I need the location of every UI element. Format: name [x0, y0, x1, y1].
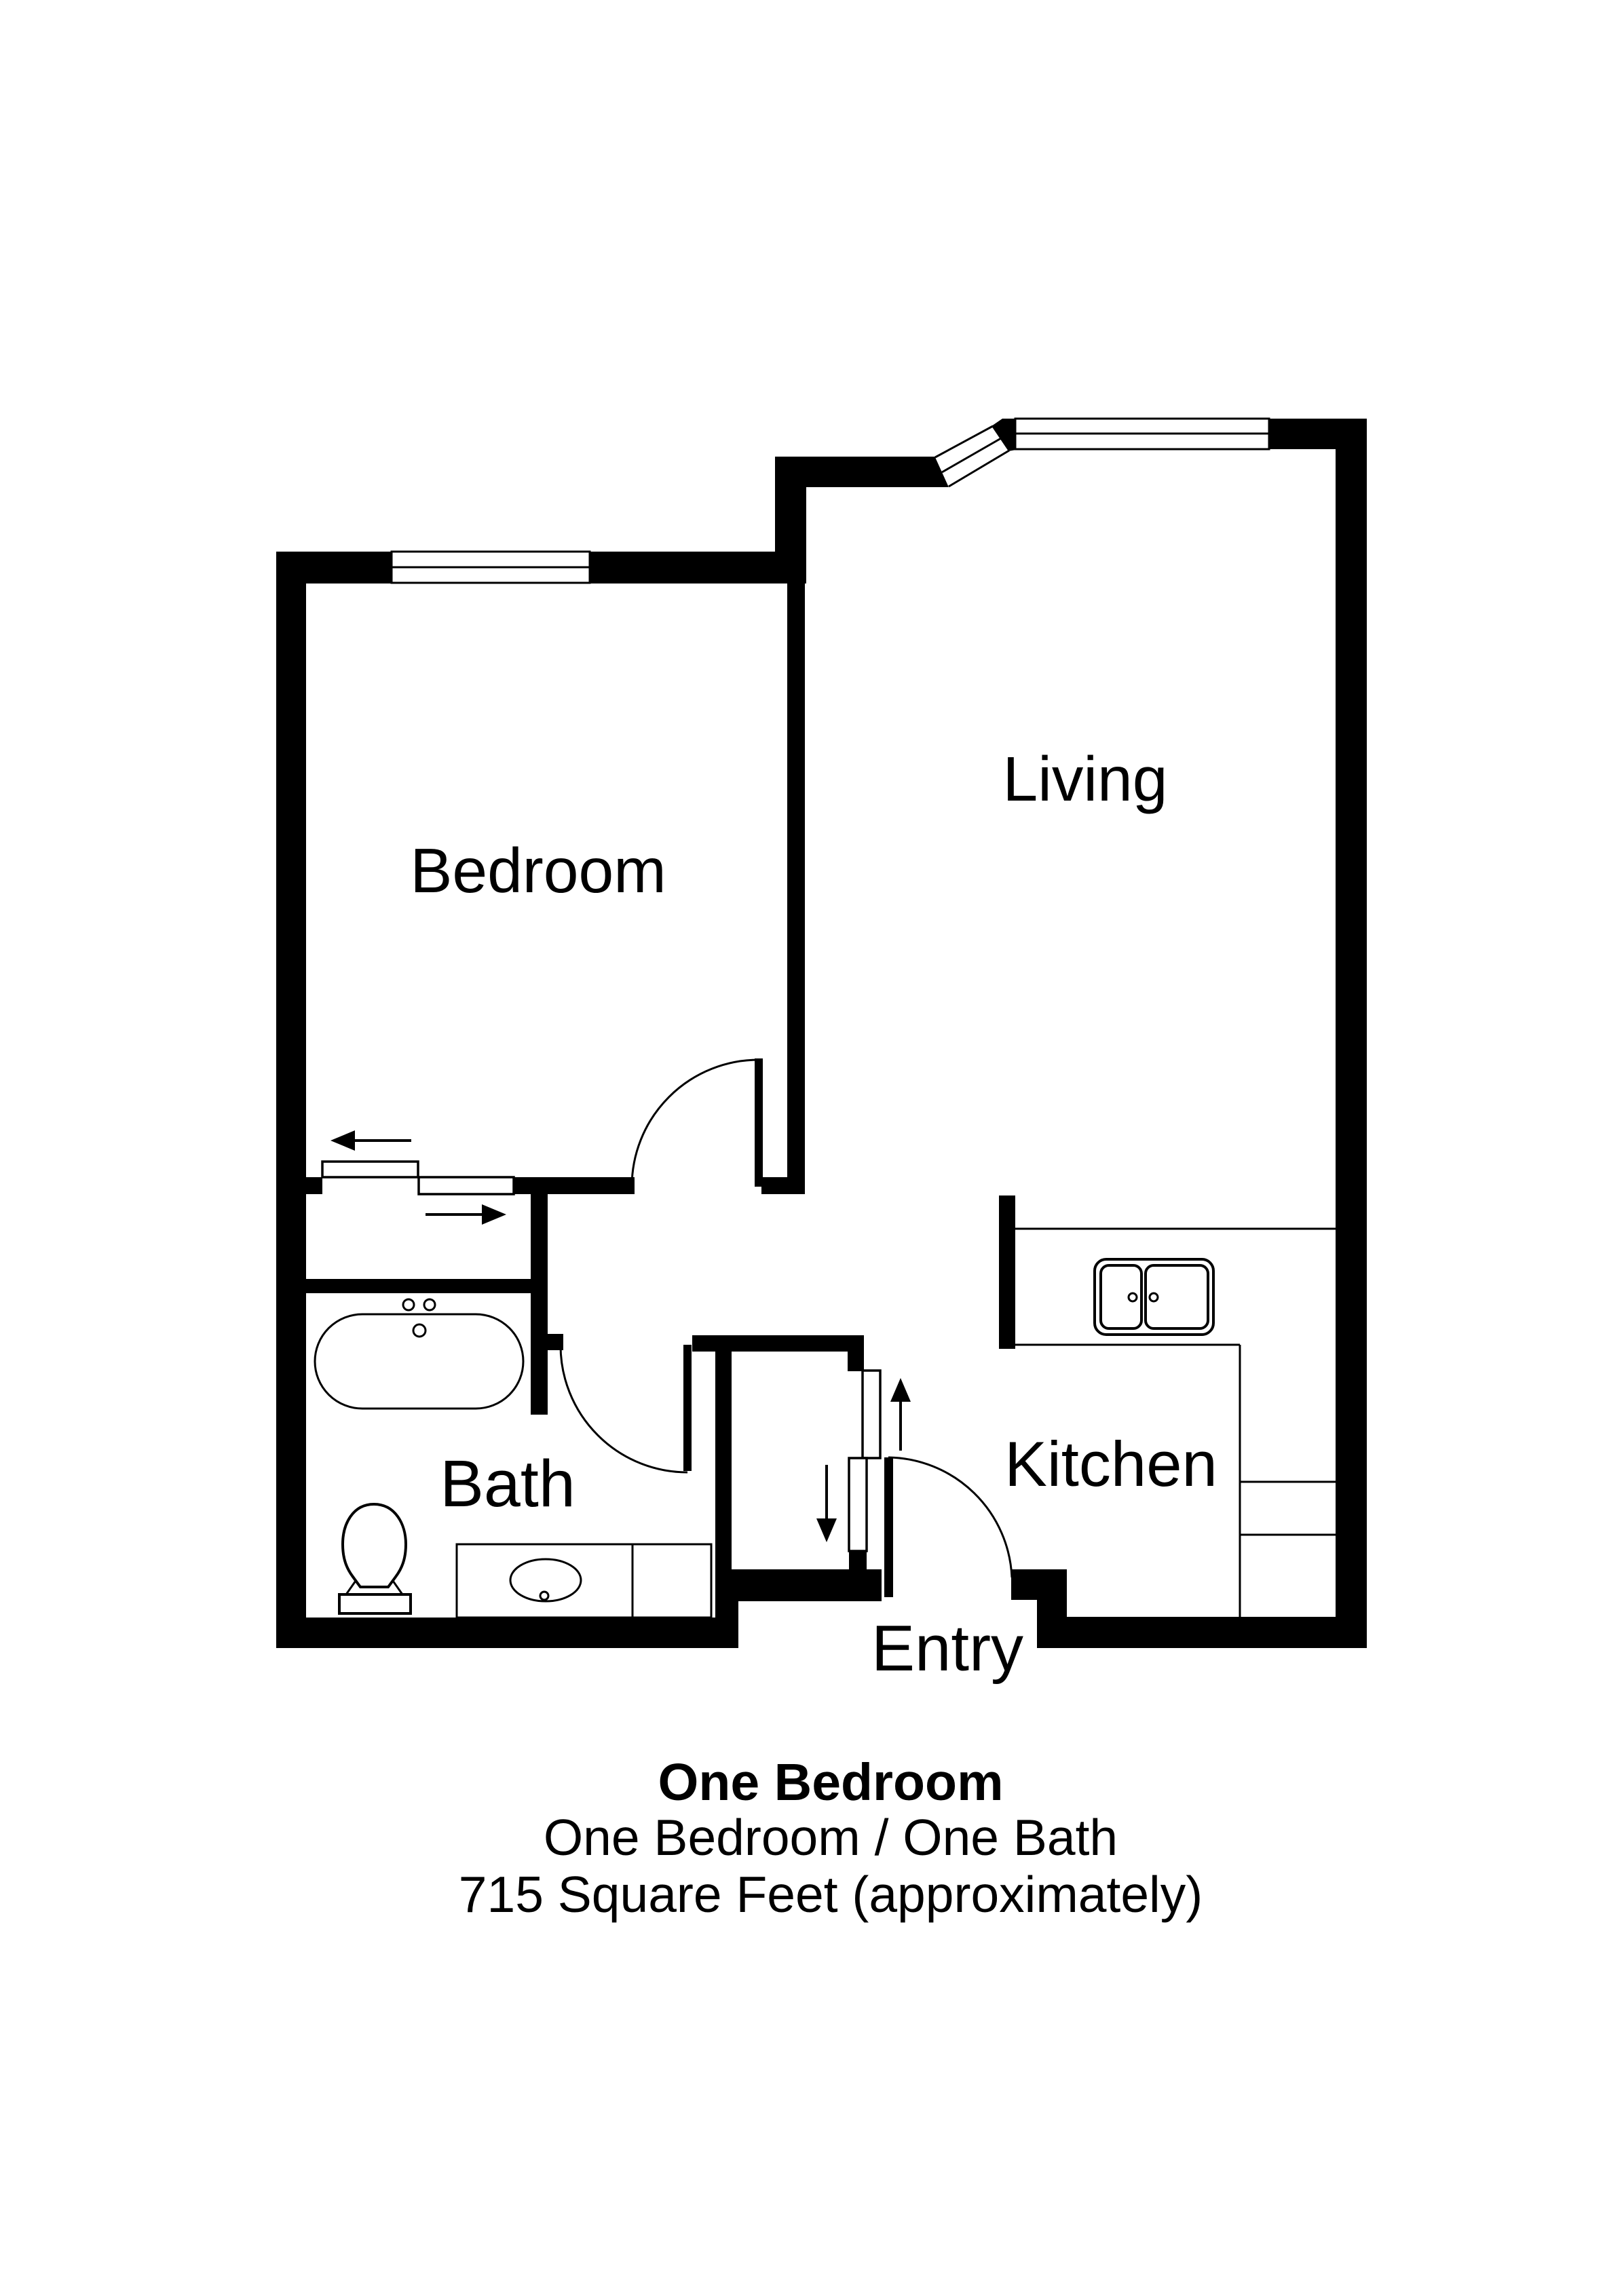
svg-text:Kitchen: Kitchen — [1004, 1428, 1217, 1499]
svg-text:One Bedroom: One Bedroom — [658, 1753, 1003, 1812]
svg-text:Living: Living — [1003, 744, 1168, 814]
svg-text:Bedroom: Bedroom — [410, 835, 666, 906]
svg-text:One Bedroom / One Bath: One Bedroom / One Bath — [544, 1809, 1118, 1866]
svg-text:715 Square Feet (approximately: 715 Square Feet (approximately) — [459, 1866, 1203, 1923]
svg-text:Entry: Entry — [871, 1612, 1023, 1685]
svg-text:Bath: Bath — [440, 1447, 575, 1520]
